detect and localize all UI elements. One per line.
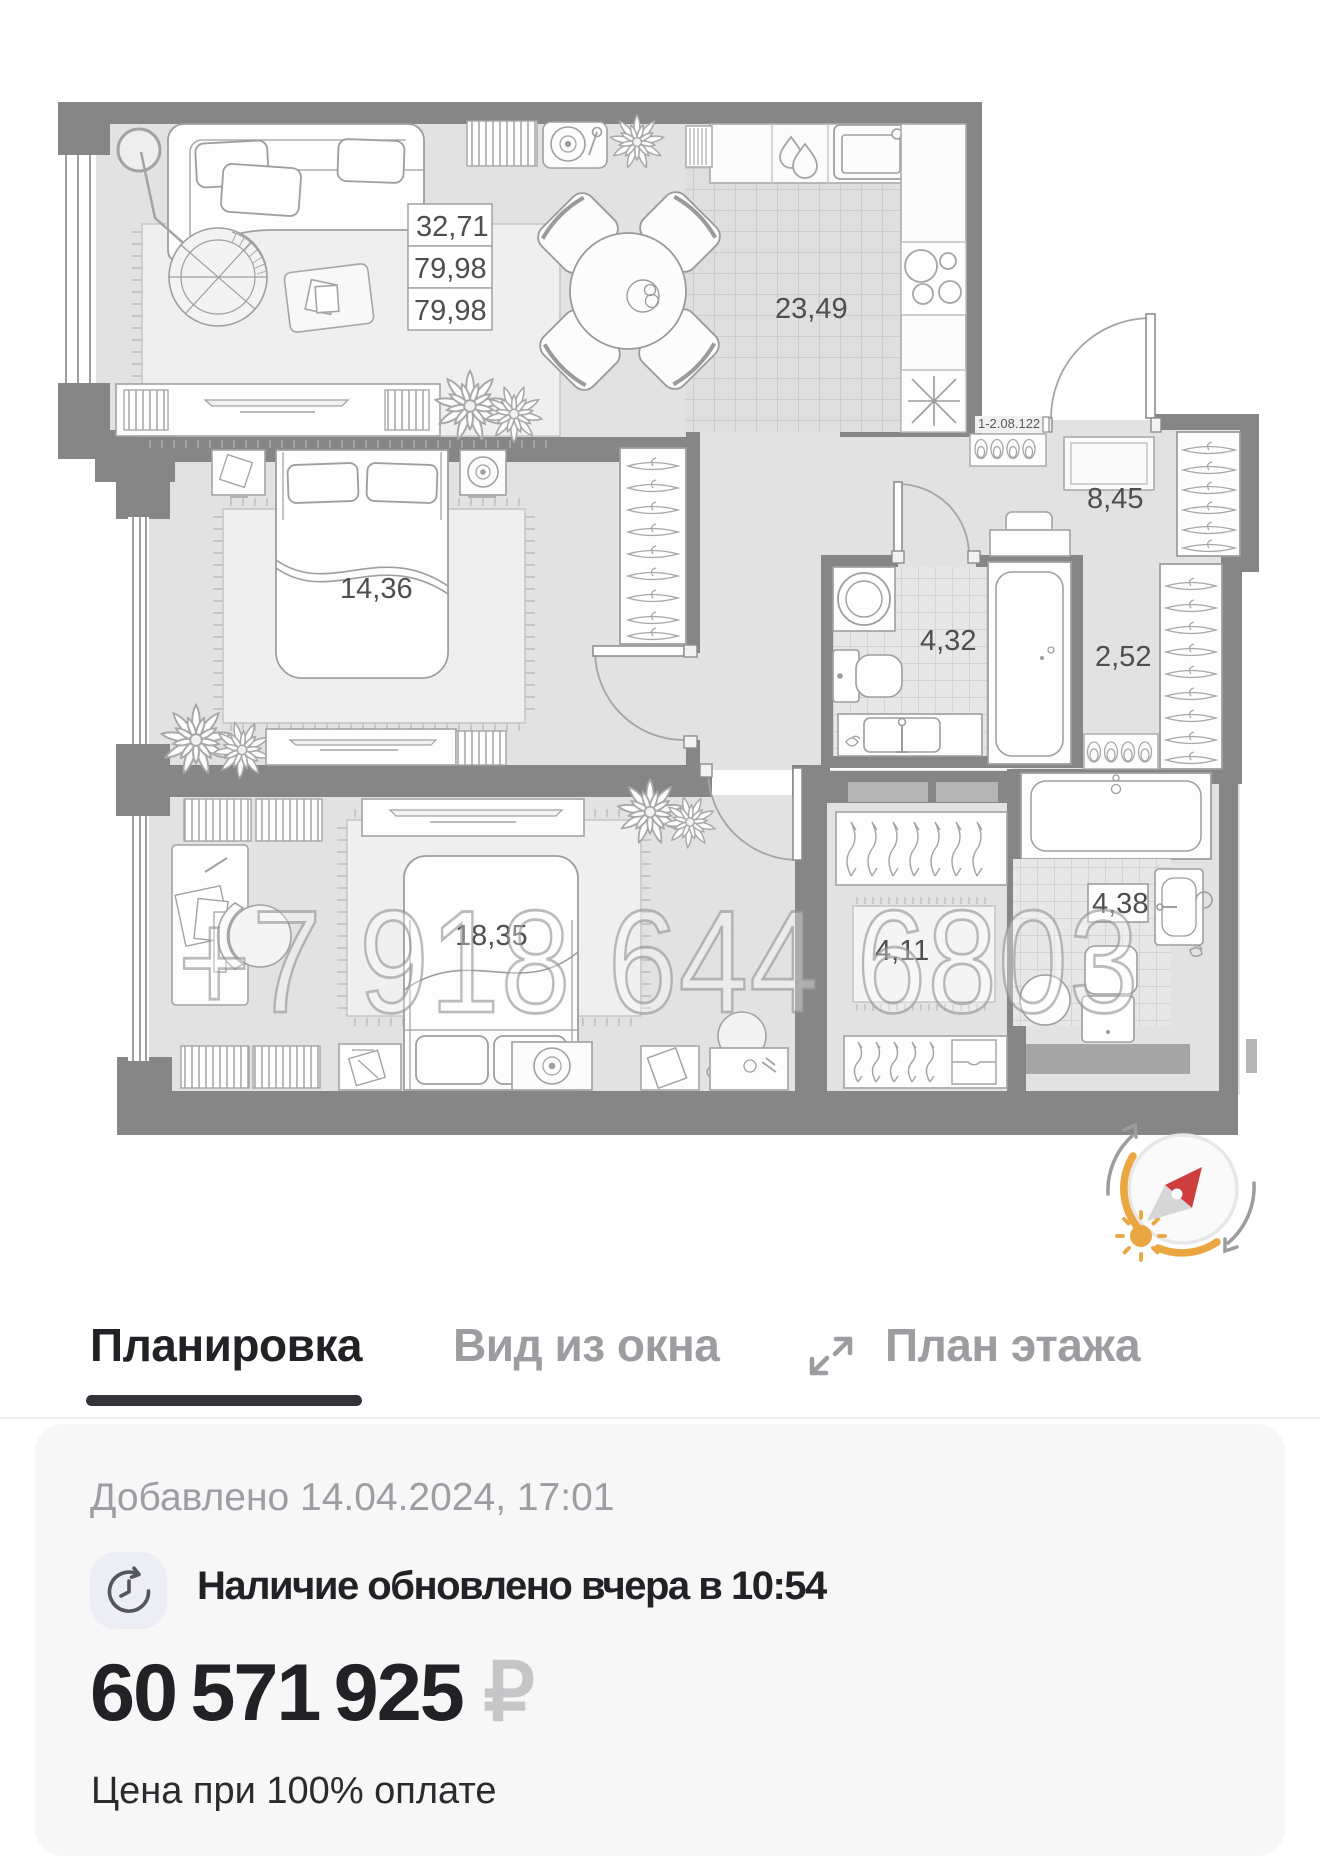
svg-text:79,98: 79,98 [414,295,487,327]
svg-text:1-2.08.122: 1-2.08.122 [978,416,1040,431]
svg-text:32,71: 32,71 [416,211,489,243]
svg-text:14,36: 14,36 [340,573,413,605]
svg-text:4,32: 4,32 [920,625,976,657]
svg-text:2,52: 2,52 [1095,641,1151,673]
svg-text:23,49: 23,49 [775,293,848,325]
svg-text:+7 918 644 6803: +7 918 644 6803 [178,880,1140,1043]
svg-text:8,45: 8,45 [1087,483,1143,515]
svg-text:79,98: 79,98 [414,253,487,285]
